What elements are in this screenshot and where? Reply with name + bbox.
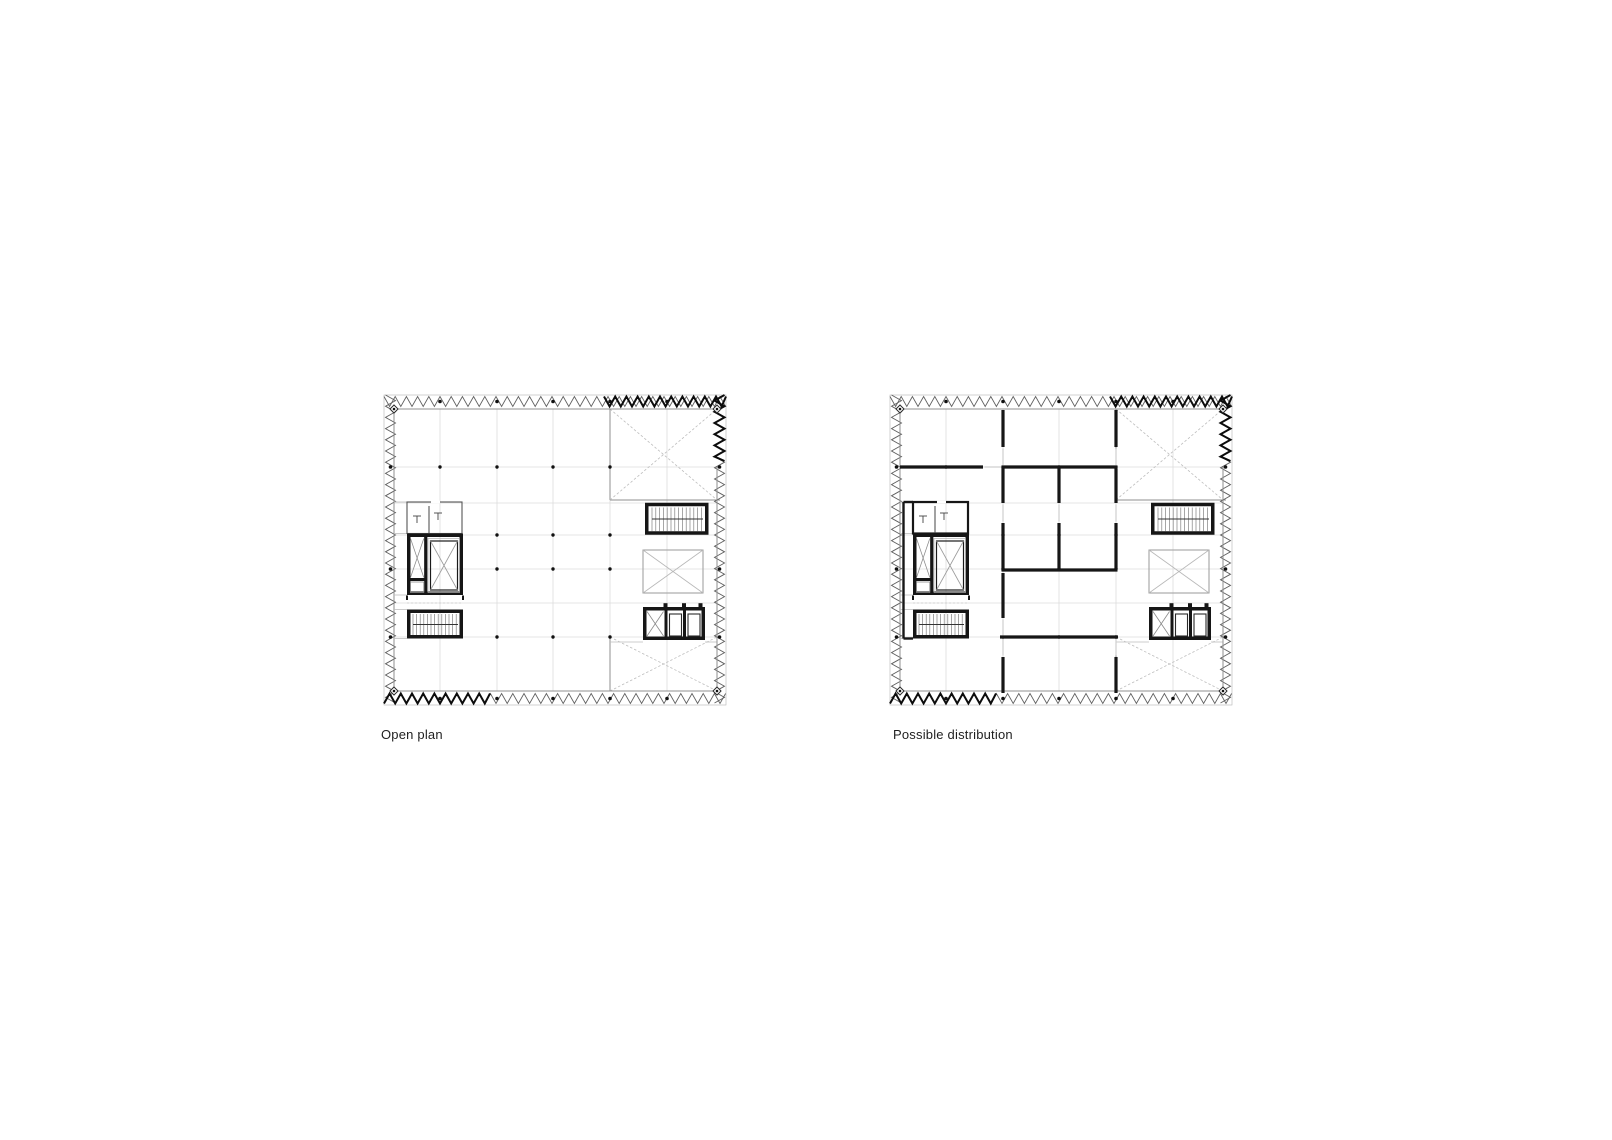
figure-open-plan: Open plan [378, 389, 732, 754]
figure-possible-distribution: Possible distribution [884, 389, 1238, 754]
service-shaft [643, 550, 703, 593]
column-dots [944, 465, 1117, 638]
service-core [394, 502, 463, 639]
floor-plan-distribution [884, 389, 1238, 711]
sheet: Open plan Possible distribution [0, 0, 1612, 1140]
plan-label-open: Open plan [381, 728, 443, 742]
elevator-bank [1151, 603, 1210, 638]
east-stair [1153, 505, 1213, 534]
east-stair [647, 505, 707, 534]
service-core [900, 502, 969, 639]
service-shaft [1149, 550, 1209, 593]
column-dots [438, 465, 611, 638]
plan-label-distribution: Possible distribution [893, 728, 1013, 742]
elevator-bank [645, 603, 704, 638]
floor-plan-open [378, 389, 732, 711]
